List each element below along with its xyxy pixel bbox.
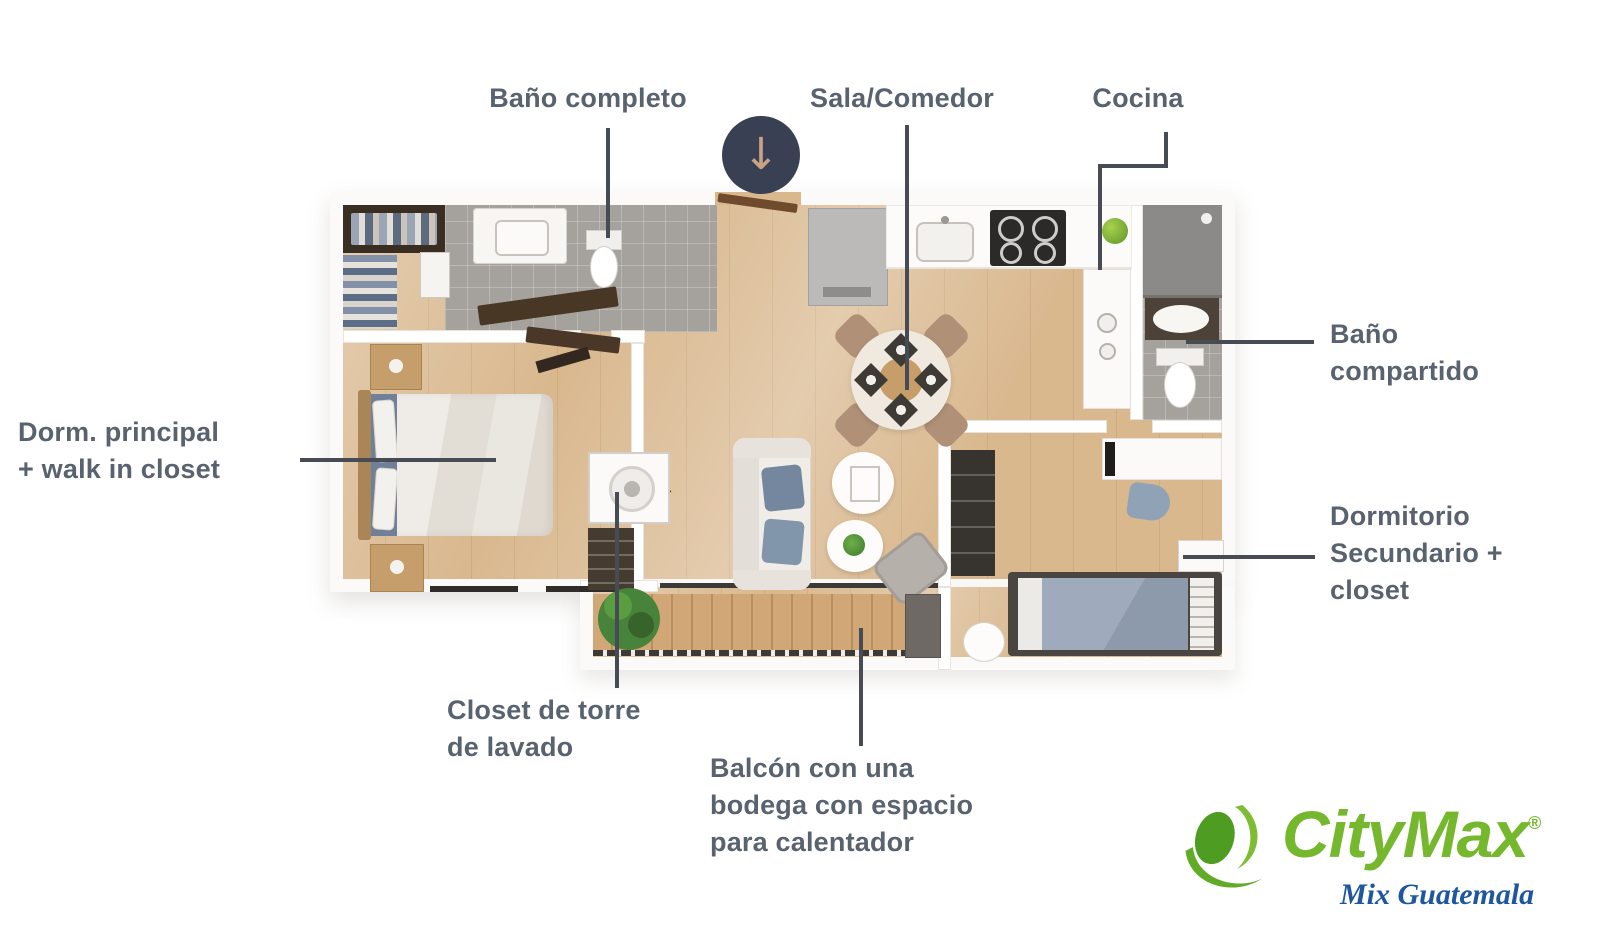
tablet xyxy=(850,466,880,502)
burner xyxy=(1032,216,1058,242)
shared-bath-vanity xyxy=(1145,298,1219,340)
balcony-rail xyxy=(593,650,938,656)
sofa xyxy=(733,438,811,590)
logo-tagline: Mix Guatemala xyxy=(1340,878,1534,912)
hanging-clothes xyxy=(351,213,437,245)
walkin-closet-wardrobe xyxy=(343,205,445,253)
registered-mark: ® xyxy=(1528,813,1540,833)
pillow xyxy=(372,399,398,462)
leader-line-balcon xyxy=(859,628,863,746)
wall-segment xyxy=(951,420,1107,433)
plant-leaf xyxy=(628,612,654,638)
label-bano-completo: Baño completo xyxy=(489,80,687,117)
kitchen-sink xyxy=(916,222,974,262)
fridge-vent xyxy=(823,287,871,297)
down-arrow-icon: ↓ xyxy=(743,133,780,177)
leader-line-cocina xyxy=(1164,132,1168,168)
stove-cooktop xyxy=(990,210,1066,266)
master-bath-vanity xyxy=(473,208,567,264)
label-cocina: Cocina xyxy=(1092,80,1183,117)
lamp xyxy=(389,359,403,373)
leader-line-bano-completo xyxy=(606,128,610,238)
leader-line-sala-comedor xyxy=(905,125,909,390)
door-frame xyxy=(1105,442,1115,476)
leader-line-cocina xyxy=(1098,164,1168,168)
shower-head xyxy=(1201,213,1212,224)
bed-duvet xyxy=(1042,578,1188,650)
single-bed xyxy=(1008,572,1222,656)
label-dorm-principal: Dorm. principal + walk in closet xyxy=(18,414,220,488)
shower-area xyxy=(1143,205,1222,298)
bed-sheet xyxy=(1018,578,1044,650)
closet-shelves xyxy=(343,255,397,329)
master-bath-sink xyxy=(495,220,549,256)
citymax-logo: CityMax® Mix Guatemala xyxy=(1180,790,1580,920)
entrance-badge: ↓ xyxy=(722,116,800,194)
kitchen-tall-counter xyxy=(1083,269,1131,409)
sofa-armrest xyxy=(733,438,811,458)
shared-toilet-bowl xyxy=(1164,362,1196,408)
balcony-plant xyxy=(598,588,660,650)
sofa-cushion xyxy=(761,464,805,512)
master-bed-headboard xyxy=(358,390,371,540)
sofa-armrest xyxy=(733,570,811,590)
label-dormitorio-secundario: Dormitorio Secundario + closet xyxy=(1330,498,1503,609)
shared-bath-sink xyxy=(1153,305,1209,333)
window xyxy=(430,586,518,592)
coffee-table xyxy=(832,452,894,514)
counter-item xyxy=(1099,343,1116,360)
round-stool xyxy=(963,622,1005,662)
bed-pillow xyxy=(1190,578,1214,650)
sofa-cushion xyxy=(761,518,805,565)
label-bano-compartido: Baño compartido xyxy=(1330,316,1479,390)
faucet xyxy=(941,216,949,224)
citymax-swoosh-icon xyxy=(1180,794,1290,904)
brand-name: CityMax® xyxy=(1282,796,1540,872)
leader-line-cocina xyxy=(1098,164,1102,270)
counter-item xyxy=(1097,313,1117,333)
brand-text: CityMax xyxy=(1282,797,1528,871)
sofa-back xyxy=(733,438,759,590)
wall-segment xyxy=(631,343,644,465)
leader-line-dorm-principal xyxy=(300,458,496,462)
label-balcon: Balcón con una bodega con espacio para c… xyxy=(710,750,973,861)
label-closet-lavado: Closet de torre de lavado xyxy=(447,692,641,766)
refrigerator xyxy=(808,208,888,306)
laundry-tower xyxy=(588,452,670,524)
laundry-shelf xyxy=(588,528,634,590)
leader-line-closet-lavado xyxy=(615,492,619,688)
leader-line-dormitorio-secundario xyxy=(1183,555,1315,559)
pillow xyxy=(372,467,398,530)
master-toilet-bowl xyxy=(590,246,618,288)
storage-bodega xyxy=(905,594,941,658)
lamp xyxy=(390,560,404,574)
leader-line-bano-compartido xyxy=(1186,340,1314,344)
secondary-desk xyxy=(1102,438,1222,480)
closet-dresser xyxy=(420,252,450,298)
burner xyxy=(1034,242,1056,264)
burner xyxy=(1000,242,1022,264)
master-bed-duvet xyxy=(397,394,553,536)
label-sala-comedor: Sala/Comedor xyxy=(810,80,994,117)
nightstand xyxy=(370,344,422,390)
nightstand xyxy=(370,544,424,592)
counter-plant xyxy=(1102,218,1128,244)
wall-segment xyxy=(1152,420,1222,433)
secondary-wardrobe xyxy=(951,450,995,576)
burner xyxy=(998,216,1024,242)
table-plant xyxy=(843,534,865,556)
